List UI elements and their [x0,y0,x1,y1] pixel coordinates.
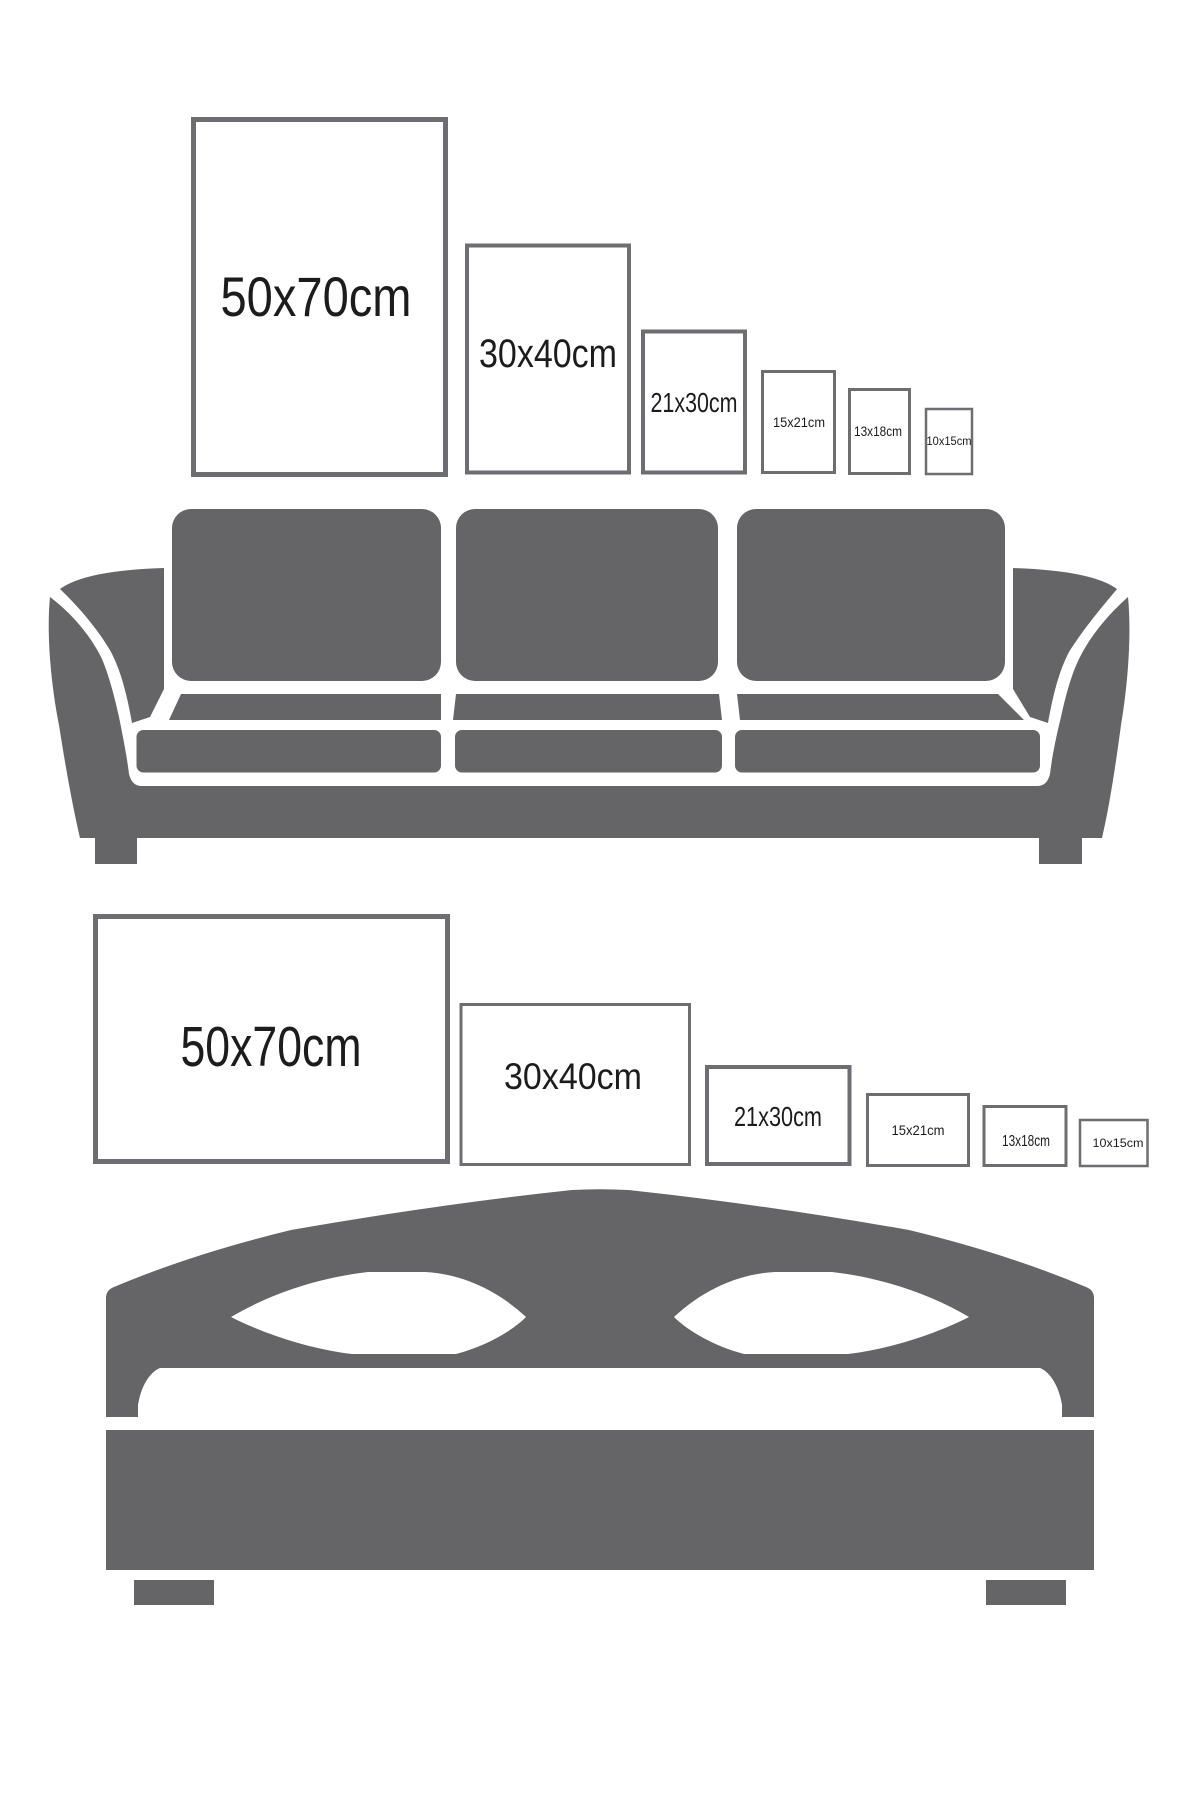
svg-text:10x15cm: 10x15cm [1093,1138,1144,1150]
svg-text:13x18cm: 13x18cm [1002,1133,1050,1150]
svg-text:13x18cm: 13x18cm [854,424,902,439]
svg-text:15x21cm: 15x21cm [773,415,825,430]
svg-text:21x30cm: 21x30cm [651,387,738,418]
svg-text:50x70cm: 50x70cm [181,1015,362,1079]
svg-text:21x30cm: 21x30cm [734,1101,822,1132]
svg-text:10x15cm: 10x15cm [927,436,972,448]
svg-text:15x21cm: 15x21cm [892,1122,945,1138]
svg-text:30x40cm: 30x40cm [504,1056,642,1097]
svg-text:50x70cm: 50x70cm [221,265,412,328]
svg-text:30x40cm: 30x40cm [479,332,617,376]
